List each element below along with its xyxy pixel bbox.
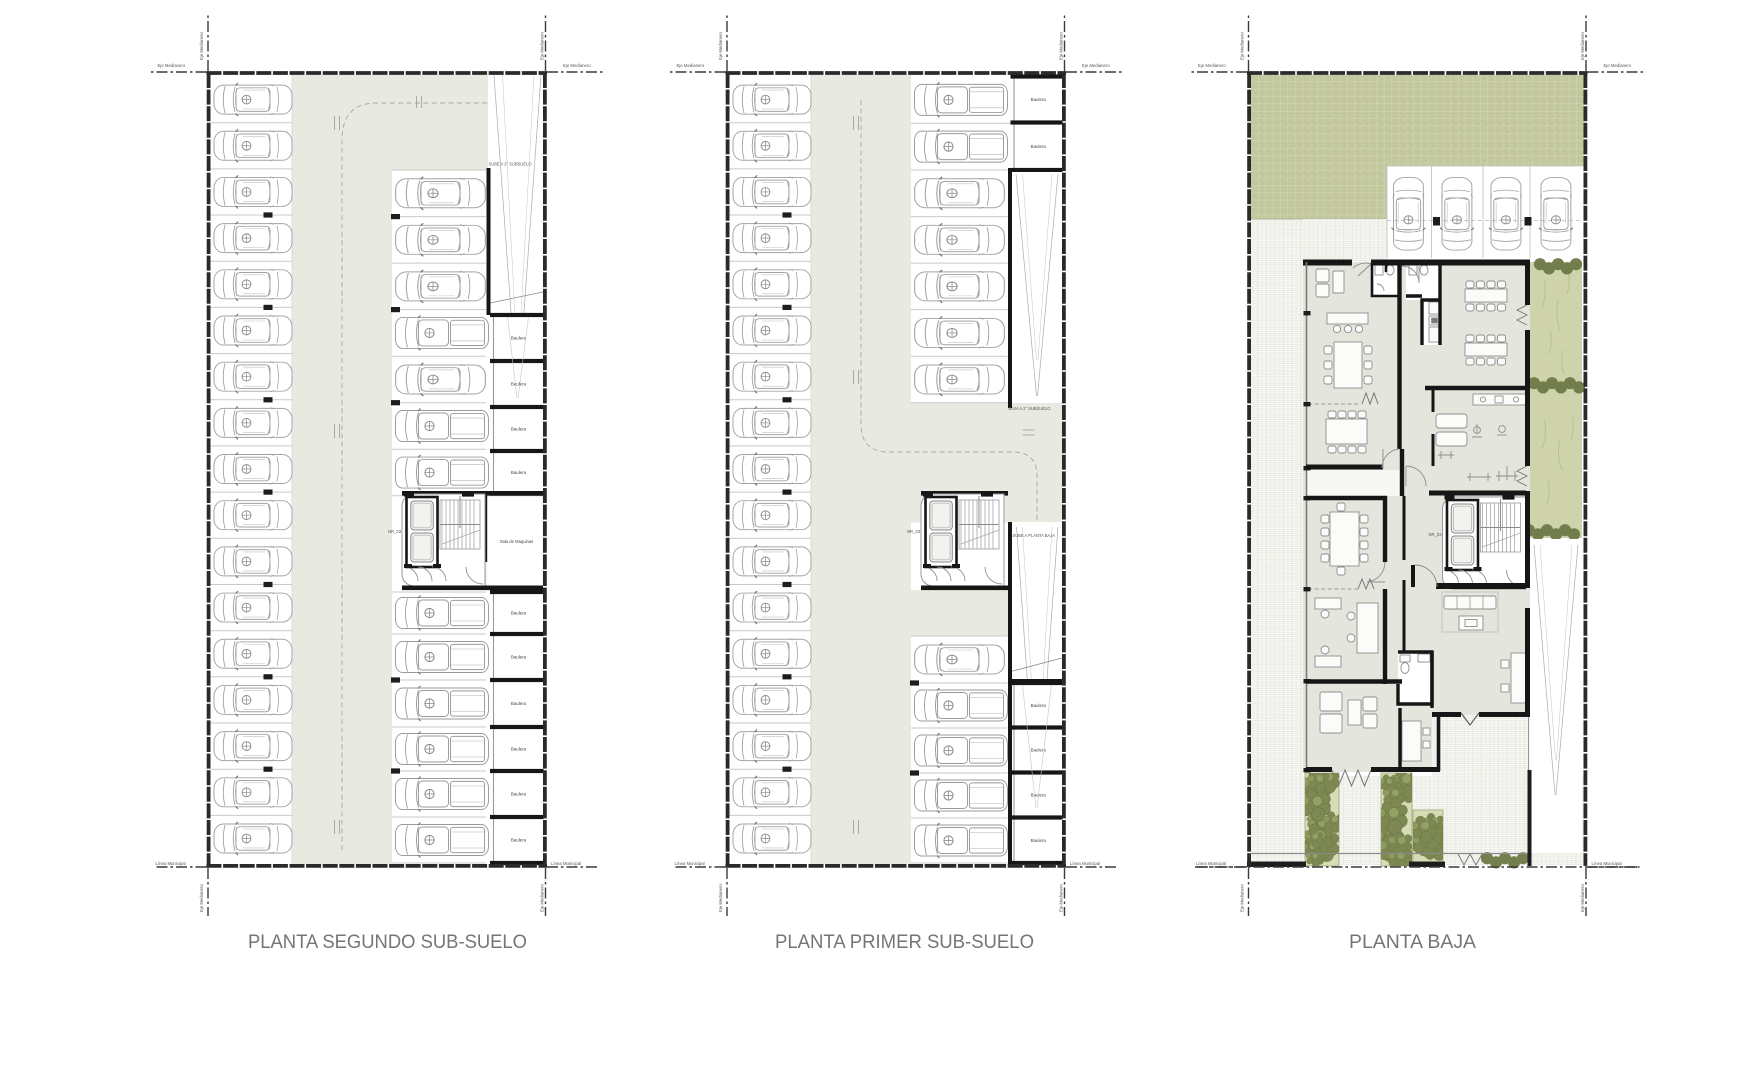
svg-text:Línea Municipal: Línea Municipal <box>156 861 186 866</box>
svg-text:SUBE A 2° SUBSUELO: SUBE A 2° SUBSUELO <box>489 162 532 167</box>
svg-text:Línea Municipal: Línea Municipal <box>1196 861 1226 866</box>
svg-text:PLANTA BAJA: PLANTA BAJA <box>1349 931 1476 953</box>
svg-text:Sala de Maquinas: Sala de Maquinas <box>500 539 534 544</box>
svg-text:Eje Medianero: Eje Medianero <box>158 63 186 68</box>
svg-text:Eje Medianero: Eje Medianero <box>718 884 723 912</box>
svg-text:Línea Municipal: Línea Municipal <box>675 861 705 866</box>
svg-text:Baulera: Baulera <box>511 747 527 752</box>
svg-text:PLANTA SEGUNDO SUB-SUELO: PLANTA SEGUNDO SUB-SUELO <box>248 931 527 953</box>
svg-text:Eje Medianero: Eje Medianero <box>1604 63 1632 68</box>
svg-text:Baulera: Baulera <box>511 792 527 797</box>
svg-text:Baulera: Baulera <box>1031 703 1047 708</box>
svg-text:Baulera: Baulera <box>1031 97 1047 102</box>
svg-text:Eje Medianero: Eje Medianero <box>1059 32 1064 60</box>
svg-text:Eje Medianero: Eje Medianero <box>199 32 204 60</box>
svg-text:Baulera: Baulera <box>511 470 527 475</box>
svg-text:Eje Medianero: Eje Medianero <box>540 32 545 60</box>
svg-text:Eje Medianero: Eje Medianero <box>563 63 591 68</box>
svg-text:NR_03: NR_03 <box>1429 532 1443 537</box>
svg-text:PLANTA PRIMER SUB-SUELO: PLANTA PRIMER SUB-SUELO <box>775 931 1034 953</box>
svg-text:Baulera: Baulera <box>511 382 527 387</box>
svg-text:NR_03: NR_03 <box>388 529 402 534</box>
svg-text:SUBE A PLANTA BAJA: SUBE A PLANTA BAJA <box>1013 533 1056 538</box>
svg-text:Baulera: Baulera <box>511 838 527 843</box>
svg-text:Línea Municipal: Línea Municipal <box>551 861 581 866</box>
svg-text:Eje Medianero: Eje Medianero <box>1240 884 1245 912</box>
svg-text:Baulera: Baulera <box>1031 838 1047 843</box>
svg-text:Eje Medianero: Eje Medianero <box>718 32 723 60</box>
svg-text:Línea Municipal: Línea Municipal <box>1070 861 1100 866</box>
svg-text:BAJA A 2° SUBSUELO: BAJA A 2° SUBSUELO <box>1009 406 1051 411</box>
svg-text:Eje Medianero: Eje Medianero <box>1580 32 1585 60</box>
svg-text:Baulera: Baulera <box>1031 144 1047 149</box>
svg-text:Eje Medianero: Eje Medianero <box>199 884 204 912</box>
svg-text:Eje Medianero: Eje Medianero <box>1082 63 1110 68</box>
svg-text:Eje Medianero: Eje Medianero <box>540 884 545 912</box>
svg-text:Baulera: Baulera <box>511 655 527 660</box>
svg-text:Línea Municipal: Línea Municipal <box>1592 861 1622 866</box>
svg-text:Baulera: Baulera <box>511 701 527 706</box>
svg-text:Eje Medianero: Eje Medianero <box>677 63 705 68</box>
svg-text:Eje Medianero: Eje Medianero <box>1580 884 1585 912</box>
svg-text:Baulera: Baulera <box>511 611 527 616</box>
svg-text:Eje Medianero: Eje Medianero <box>1059 884 1064 912</box>
svg-text:Baulera: Baulera <box>511 336 527 341</box>
svg-text:NR_03: NR_03 <box>907 529 921 534</box>
svg-text:Baulera: Baulera <box>511 427 527 432</box>
svg-text:Eje Medianero: Eje Medianero <box>1240 32 1245 60</box>
svg-text:Eje Medianero: Eje Medianero <box>1198 63 1226 68</box>
